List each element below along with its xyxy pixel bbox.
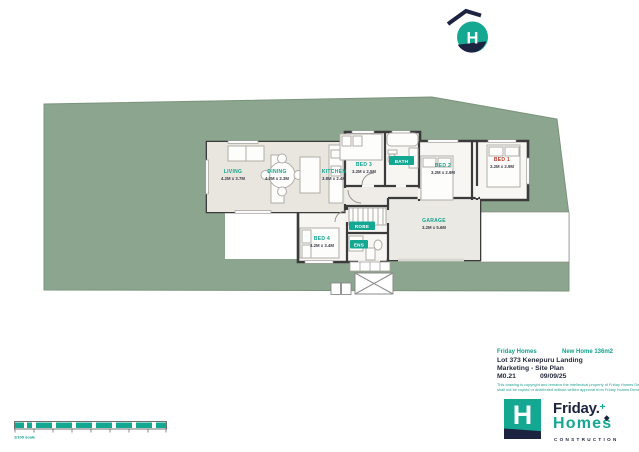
titleblock-company: Friday Homes — [497, 349, 537, 355]
label-kitchen: KITCHEN — [322, 169, 346, 175]
dims-bed3: 3.2M x 2.5M — [352, 169, 376, 174]
friday-homes-roof-logo: H — [448, 11, 495, 59]
dims-dining: 4.2M x 2.3M — [265, 176, 289, 181]
dims-living: 4.2M x 3.7M — [221, 176, 245, 181]
dims-bed4: 3.2M x 3.4M — [310, 243, 334, 248]
dims-bed1: 3.2M x 2.9M — [490, 164, 514, 169]
deck-crossed — [355, 273, 393, 294]
label-bed2: BED 2 — [435, 163, 451, 169]
ens-vanity — [366, 248, 375, 260]
bin — [331, 283, 341, 295]
scale-label: 1/100 scale — [14, 435, 36, 440]
friday-homes-square-logo: H — [504, 399, 541, 439]
titleblock-number: M0.21 — [497, 373, 516, 380]
patio-area — [225, 213, 298, 259]
dims-bed2: 3.2M x 2.9M — [431, 170, 455, 175]
plus-icon: + — [600, 402, 606, 413]
scale-ticks — [15, 429, 166, 433]
label-robe: ROBE — [355, 224, 369, 229]
titleblock-date: 09/09/25 — [540, 373, 566, 380]
site-plan-sheet: H — [0, 0, 639, 452]
brand-tagline: CONSTRUCTION — [554, 437, 619, 442]
dims-kitchen: 3.8M x 2.4M — [322, 176, 346, 181]
label-living: LIVING — [224, 169, 242, 175]
label-bed3: BED 3 — [356, 162, 372, 168]
label-bed4: BED 4 — [314, 236, 330, 242]
label-garage: GARAGE — [422, 218, 446, 224]
dims-garage: 3.2M x 5.6M — [422, 225, 446, 230]
titleblock-disclaimer-line2: shall not be copied or distributed witho… — [497, 387, 639, 392]
label-dining: DINING — [267, 169, 286, 175]
label-bath: BATH — [395, 159, 409, 164]
driveway-area — [480, 212, 569, 262]
bin — [342, 283, 352, 295]
bathtub — [387, 133, 418, 146]
titleblock-project: New Home 136m2 — [562, 349, 613, 355]
logo-monogram: H — [467, 30, 479, 48]
label-ens: ENS — [354, 243, 364, 248]
scale-bar: 1/100 scale — [14, 422, 167, 440]
titleblock-lot: Lot 373 Kenepuru Landing — [497, 357, 583, 364]
kitchen-island — [300, 157, 320, 193]
logo-monogram: H — [504, 400, 541, 430]
dining-table — [269, 162, 295, 188]
titleblock-sheet: Marketing - Site Plan — [497, 365, 564, 372]
label-bed1: BED 1 — [494, 157, 510, 163]
